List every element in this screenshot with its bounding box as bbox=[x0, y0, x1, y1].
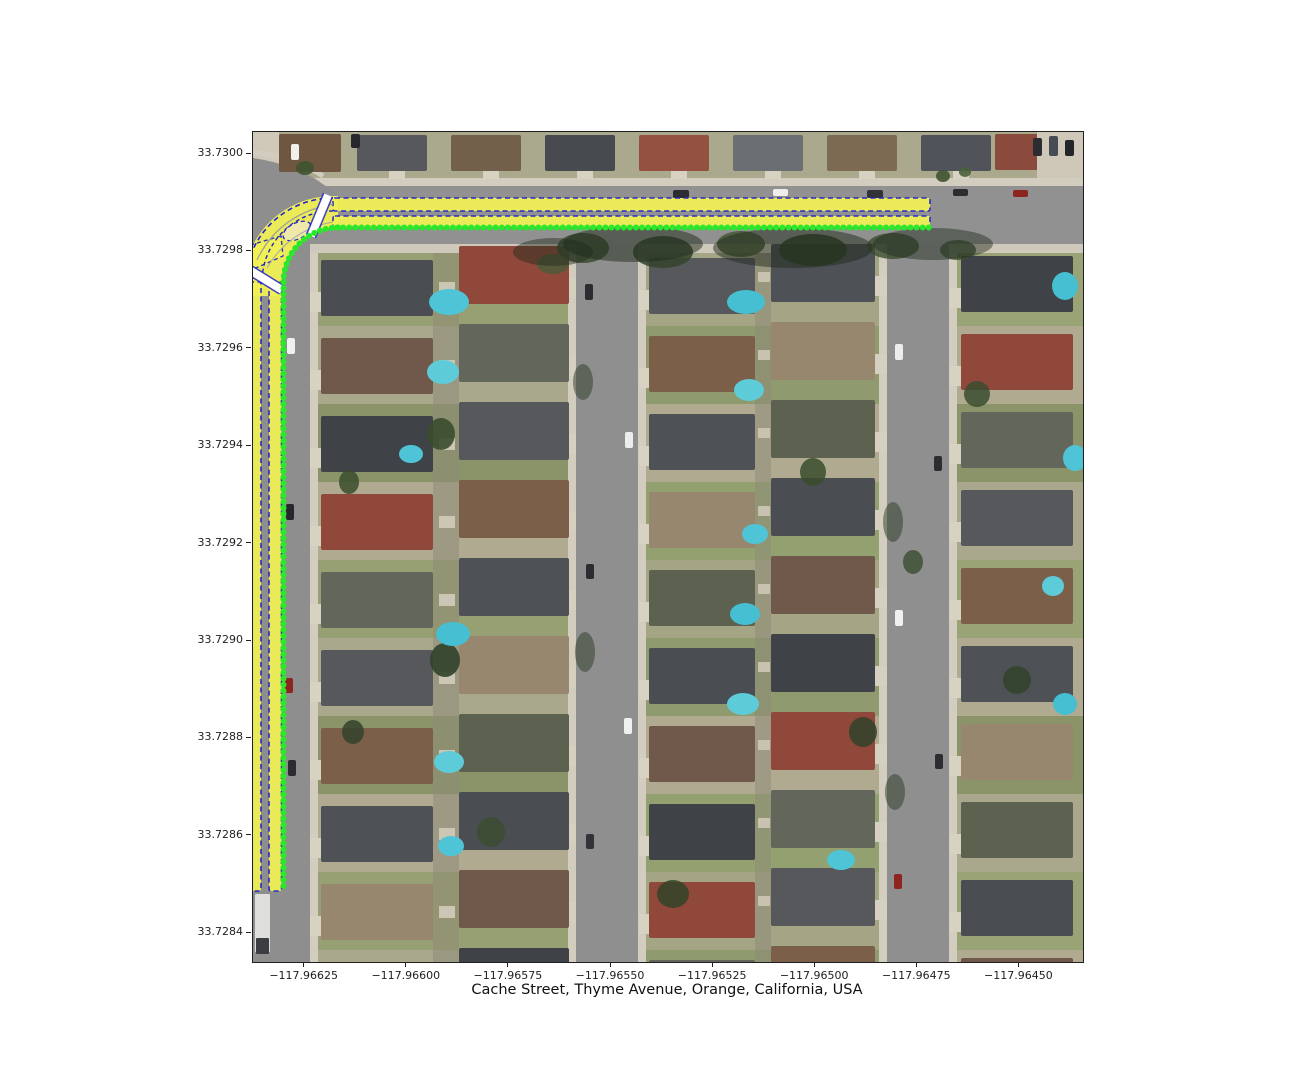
x-tick-mark bbox=[1018, 962, 1019, 967]
house-roof bbox=[459, 480, 569, 538]
driveway bbox=[310, 682, 321, 702]
tree bbox=[339, 470, 359, 494]
driveway bbox=[639, 524, 649, 544]
driveway bbox=[310, 760, 321, 780]
driveway bbox=[950, 600, 961, 620]
driveway bbox=[389, 171, 405, 179]
tree bbox=[1003, 666, 1031, 694]
pool bbox=[1042, 576, 1064, 596]
driveway bbox=[569, 512, 576, 532]
house-roof bbox=[961, 802, 1073, 858]
y-tick-label: 33.7288 bbox=[173, 730, 243, 744]
car bbox=[586, 834, 594, 849]
house-roof bbox=[771, 790, 875, 848]
car bbox=[867, 190, 883, 198]
house-roof bbox=[733, 135, 803, 171]
y-tick-mark bbox=[246, 932, 251, 933]
house-roof bbox=[321, 650, 433, 706]
driveway bbox=[950, 288, 961, 308]
lane-polygon bbox=[269, 282, 282, 891]
pool bbox=[434, 751, 464, 773]
house-roof bbox=[459, 636, 569, 694]
driveway bbox=[569, 824, 576, 844]
driveway bbox=[639, 602, 649, 622]
driveway bbox=[875, 822, 887, 842]
driveway bbox=[639, 758, 649, 778]
car bbox=[625, 432, 633, 448]
pool bbox=[1053, 693, 1077, 715]
house-roof bbox=[961, 412, 1073, 468]
house-roof bbox=[321, 260, 433, 316]
driveway bbox=[875, 432, 887, 452]
palm-tree bbox=[959, 167, 971, 177]
y-tick-label: 33.7292 bbox=[173, 536, 243, 550]
house-roof bbox=[771, 400, 875, 458]
x-tick-label: −117.96625 bbox=[259, 969, 349, 983]
driveway bbox=[310, 370, 321, 390]
car bbox=[953, 189, 968, 196]
house-roof bbox=[459, 870, 569, 928]
driveway bbox=[639, 446, 649, 466]
car bbox=[895, 610, 903, 626]
truck-cab bbox=[256, 938, 269, 954]
x-tick-label: −117.96450 bbox=[973, 969, 1063, 983]
car bbox=[1033, 138, 1042, 156]
tree bbox=[427, 418, 455, 450]
house-roof bbox=[961, 880, 1073, 936]
driveway bbox=[310, 604, 321, 624]
patio bbox=[758, 506, 770, 516]
palm-tree bbox=[296, 161, 314, 175]
driveway bbox=[569, 590, 576, 610]
driveway bbox=[875, 276, 887, 296]
house-roof bbox=[321, 884, 433, 940]
house-roof bbox=[321, 494, 433, 550]
tree-shadow-band bbox=[513, 238, 593, 266]
y-tick-mark bbox=[246, 250, 251, 251]
x-tick-label: −117.96500 bbox=[769, 969, 859, 983]
driveway bbox=[569, 902, 576, 922]
x-tick-mark bbox=[814, 962, 815, 967]
house-roof bbox=[771, 322, 875, 380]
driveway bbox=[875, 900, 887, 920]
x-tick-mark bbox=[916, 962, 917, 967]
house-roof bbox=[827, 135, 897, 171]
y-tick-mark bbox=[246, 445, 251, 446]
tree-shadow-band bbox=[873, 228, 993, 260]
driveway bbox=[950, 366, 961, 386]
driveway bbox=[569, 434, 576, 454]
pool bbox=[1052, 272, 1078, 300]
x-tick-mark bbox=[405, 962, 406, 967]
driveway bbox=[639, 680, 649, 700]
tree bbox=[849, 717, 877, 747]
house-roof bbox=[649, 726, 755, 782]
y-tick-label: 33.7298 bbox=[173, 243, 243, 257]
house-roof bbox=[649, 492, 755, 548]
tree bbox=[477, 817, 505, 847]
driveway bbox=[765, 171, 781, 179]
house-roof bbox=[321, 806, 433, 862]
driveway bbox=[310, 916, 321, 936]
x-tick-label: −117.96600 bbox=[361, 969, 451, 983]
x-tick-label: −117.96575 bbox=[463, 969, 553, 983]
aerial-base-layer bbox=[253, 132, 1083, 962]
car bbox=[291, 144, 299, 160]
house-roof bbox=[961, 490, 1073, 546]
house-roof bbox=[459, 402, 569, 460]
parking-pad bbox=[1037, 132, 1083, 178]
pool bbox=[429, 289, 469, 315]
pool bbox=[438, 836, 464, 856]
car bbox=[934, 456, 942, 471]
house-roof bbox=[321, 416, 433, 472]
y-tick-label: 33.7296 bbox=[173, 341, 243, 355]
patio bbox=[758, 584, 770, 594]
driveway bbox=[671, 171, 687, 179]
tree bbox=[800, 458, 826, 486]
driveway bbox=[950, 912, 961, 932]
pool bbox=[730, 603, 760, 625]
x-tick-mark bbox=[610, 962, 611, 967]
driveway bbox=[310, 448, 321, 468]
car bbox=[287, 338, 295, 354]
car bbox=[1049, 136, 1058, 156]
house-roof bbox=[771, 868, 875, 926]
patio bbox=[758, 350, 770, 360]
driveway bbox=[310, 526, 321, 546]
sidewalk bbox=[253, 178, 1083, 187]
house-roof bbox=[961, 724, 1073, 780]
driveway bbox=[569, 278, 576, 298]
tree bbox=[964, 381, 990, 407]
driveway bbox=[950, 756, 961, 776]
pool bbox=[734, 379, 764, 401]
car bbox=[624, 718, 632, 734]
house-roof bbox=[451, 135, 521, 171]
y-tick-mark bbox=[246, 834, 251, 835]
house-roof bbox=[459, 714, 569, 772]
driveway bbox=[639, 368, 649, 388]
house-roof bbox=[771, 556, 875, 614]
house-roof bbox=[921, 135, 991, 171]
y-tick-label: 33.7284 bbox=[173, 925, 243, 939]
driveway bbox=[569, 668, 576, 688]
driveway bbox=[569, 746, 576, 766]
x-tick-mark bbox=[303, 962, 304, 967]
patio bbox=[439, 906, 455, 918]
driveway bbox=[875, 588, 887, 608]
car bbox=[1065, 140, 1074, 156]
car bbox=[585, 284, 593, 300]
axis-title: Cache Street, Thyme Avenue, Orange, Cali… bbox=[252, 982, 1082, 998]
house-roof bbox=[649, 960, 755, 962]
tree bbox=[657, 880, 689, 908]
y-tick-label: 33.7286 bbox=[173, 828, 243, 842]
street-tree-shadow bbox=[575, 632, 595, 672]
y-tick-mark bbox=[246, 347, 251, 348]
driveway bbox=[483, 171, 499, 179]
car bbox=[586, 564, 594, 579]
figure: −117.96625−117.96600−117.96575−117.96550… bbox=[0, 0, 1298, 1080]
car bbox=[894, 874, 902, 889]
driveway bbox=[577, 171, 593, 179]
y-tick-mark bbox=[246, 640, 251, 641]
lane-polygon bbox=[253, 282, 261, 891]
driveway bbox=[639, 290, 649, 310]
street-tree-shadow bbox=[883, 502, 903, 542]
driveway bbox=[875, 744, 887, 764]
driveway bbox=[875, 354, 887, 374]
house-roof bbox=[649, 414, 755, 470]
car bbox=[1013, 190, 1028, 197]
patio bbox=[758, 740, 770, 750]
house-roof bbox=[545, 135, 615, 171]
y-tick-label: 33.7294 bbox=[173, 438, 243, 452]
y-tick-mark bbox=[246, 737, 251, 738]
pool bbox=[727, 693, 759, 715]
house-roof bbox=[321, 338, 433, 394]
driveway bbox=[859, 171, 875, 179]
patio bbox=[758, 662, 770, 672]
car bbox=[773, 189, 788, 196]
x-tick-mark bbox=[712, 962, 713, 967]
patio bbox=[439, 594, 455, 606]
street-tree-shadow bbox=[885, 774, 905, 810]
house-roof bbox=[357, 135, 427, 171]
driveway bbox=[950, 522, 961, 542]
lane-polygon bbox=[333, 198, 930, 211]
patio bbox=[758, 896, 770, 906]
x-tick-label: −117.96525 bbox=[667, 969, 757, 983]
tree bbox=[903, 550, 923, 574]
car bbox=[895, 344, 903, 360]
house-roof bbox=[961, 568, 1073, 624]
street-vertical-1 bbox=[576, 244, 638, 962]
palm-tree bbox=[936, 170, 950, 182]
tree bbox=[342, 720, 364, 744]
house-roof bbox=[649, 804, 755, 860]
house-roof bbox=[459, 324, 569, 382]
house-roof bbox=[771, 478, 875, 536]
car bbox=[935, 754, 943, 769]
x-tick-mark bbox=[507, 962, 508, 967]
driveway bbox=[950, 834, 961, 854]
pool bbox=[742, 524, 768, 544]
driveway bbox=[639, 836, 649, 856]
satellite-map bbox=[253, 132, 1083, 962]
car bbox=[286, 504, 294, 520]
pool bbox=[427, 360, 459, 384]
car bbox=[673, 190, 689, 198]
y-tick-label: 33.7290 bbox=[173, 633, 243, 647]
tree bbox=[430, 643, 460, 677]
pool bbox=[727, 290, 765, 314]
driveway bbox=[310, 838, 321, 858]
pool bbox=[399, 445, 423, 463]
house-roof bbox=[459, 792, 569, 850]
x-tick-label: −117.96475 bbox=[871, 969, 961, 983]
house-roof bbox=[771, 634, 875, 692]
house-roof bbox=[459, 948, 569, 962]
x-tick-label: −117.96550 bbox=[565, 969, 655, 983]
map-plot-area bbox=[252, 131, 1084, 963]
y-tick-label: 33.7300 bbox=[173, 146, 243, 160]
house-roof bbox=[321, 572, 433, 628]
house-roof bbox=[771, 946, 875, 962]
patio bbox=[439, 516, 455, 528]
y-tick-mark bbox=[246, 153, 251, 154]
patio bbox=[758, 428, 770, 438]
street-tree-shadow bbox=[573, 364, 593, 400]
y-tick-mark bbox=[246, 542, 251, 543]
car bbox=[351, 134, 360, 148]
driveway bbox=[875, 666, 887, 686]
house-roof bbox=[639, 135, 709, 171]
pool bbox=[827, 850, 855, 870]
house-roof bbox=[459, 558, 569, 616]
house-roof bbox=[321, 728, 433, 784]
patio bbox=[758, 818, 770, 828]
car bbox=[288, 760, 296, 776]
tree-shadow-band bbox=[713, 228, 873, 268]
pool bbox=[436, 622, 470, 646]
driveway bbox=[639, 914, 649, 934]
driveway bbox=[310, 292, 321, 312]
driveway bbox=[950, 678, 961, 698]
driveway bbox=[950, 444, 961, 464]
patio bbox=[758, 272, 770, 282]
